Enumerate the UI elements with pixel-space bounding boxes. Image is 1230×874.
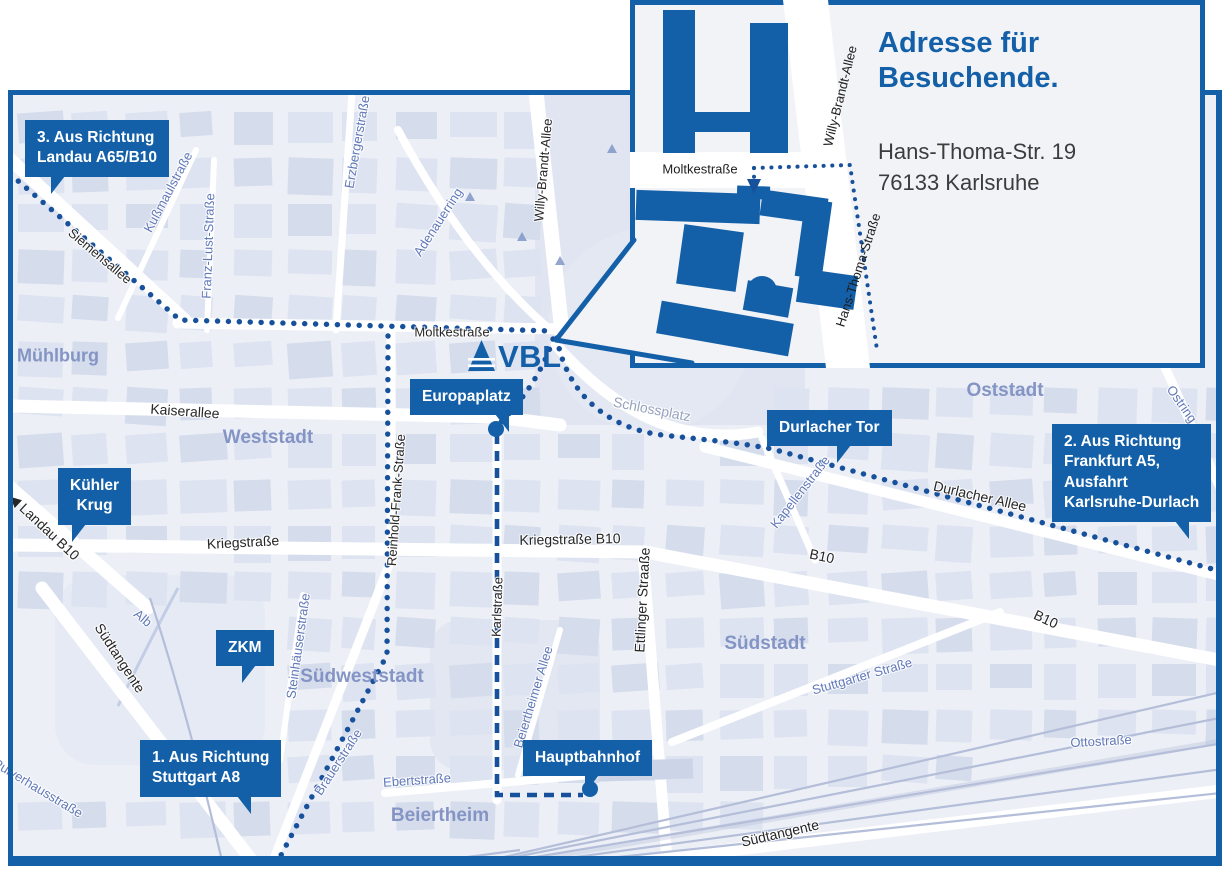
inset-street-label: Willy-Brandt-Allee bbox=[820, 44, 860, 148]
inset-title: Adresse für Besuchende. bbox=[878, 26, 1059, 96]
inset-street-label: Hans-Thoma-Straße bbox=[833, 211, 884, 328]
inset-address: Hans-Thoma-Str. 19 76133 Karlsruhe bbox=[878, 136, 1076, 198]
inset-title-line1: Adresse für bbox=[878, 26, 1059, 61]
inset-street-label: Moltkestraße bbox=[662, 162, 737, 177]
inset-labels: MoltkestraßeWilly-Brandt-AlleeHans-Thoma… bbox=[630, 0, 1205, 368]
inset-title-line2: Besuchende. bbox=[878, 61, 1059, 96]
vbl-directions-map: SiemensalleeKußmaulstraßeFranz-Lust-Stra… bbox=[0, 0, 1230, 874]
inset-address-line2: 76133 Karlsruhe bbox=[878, 167, 1076, 198]
inset-address-line1: Hans-Thoma-Str. 19 bbox=[878, 136, 1076, 167]
